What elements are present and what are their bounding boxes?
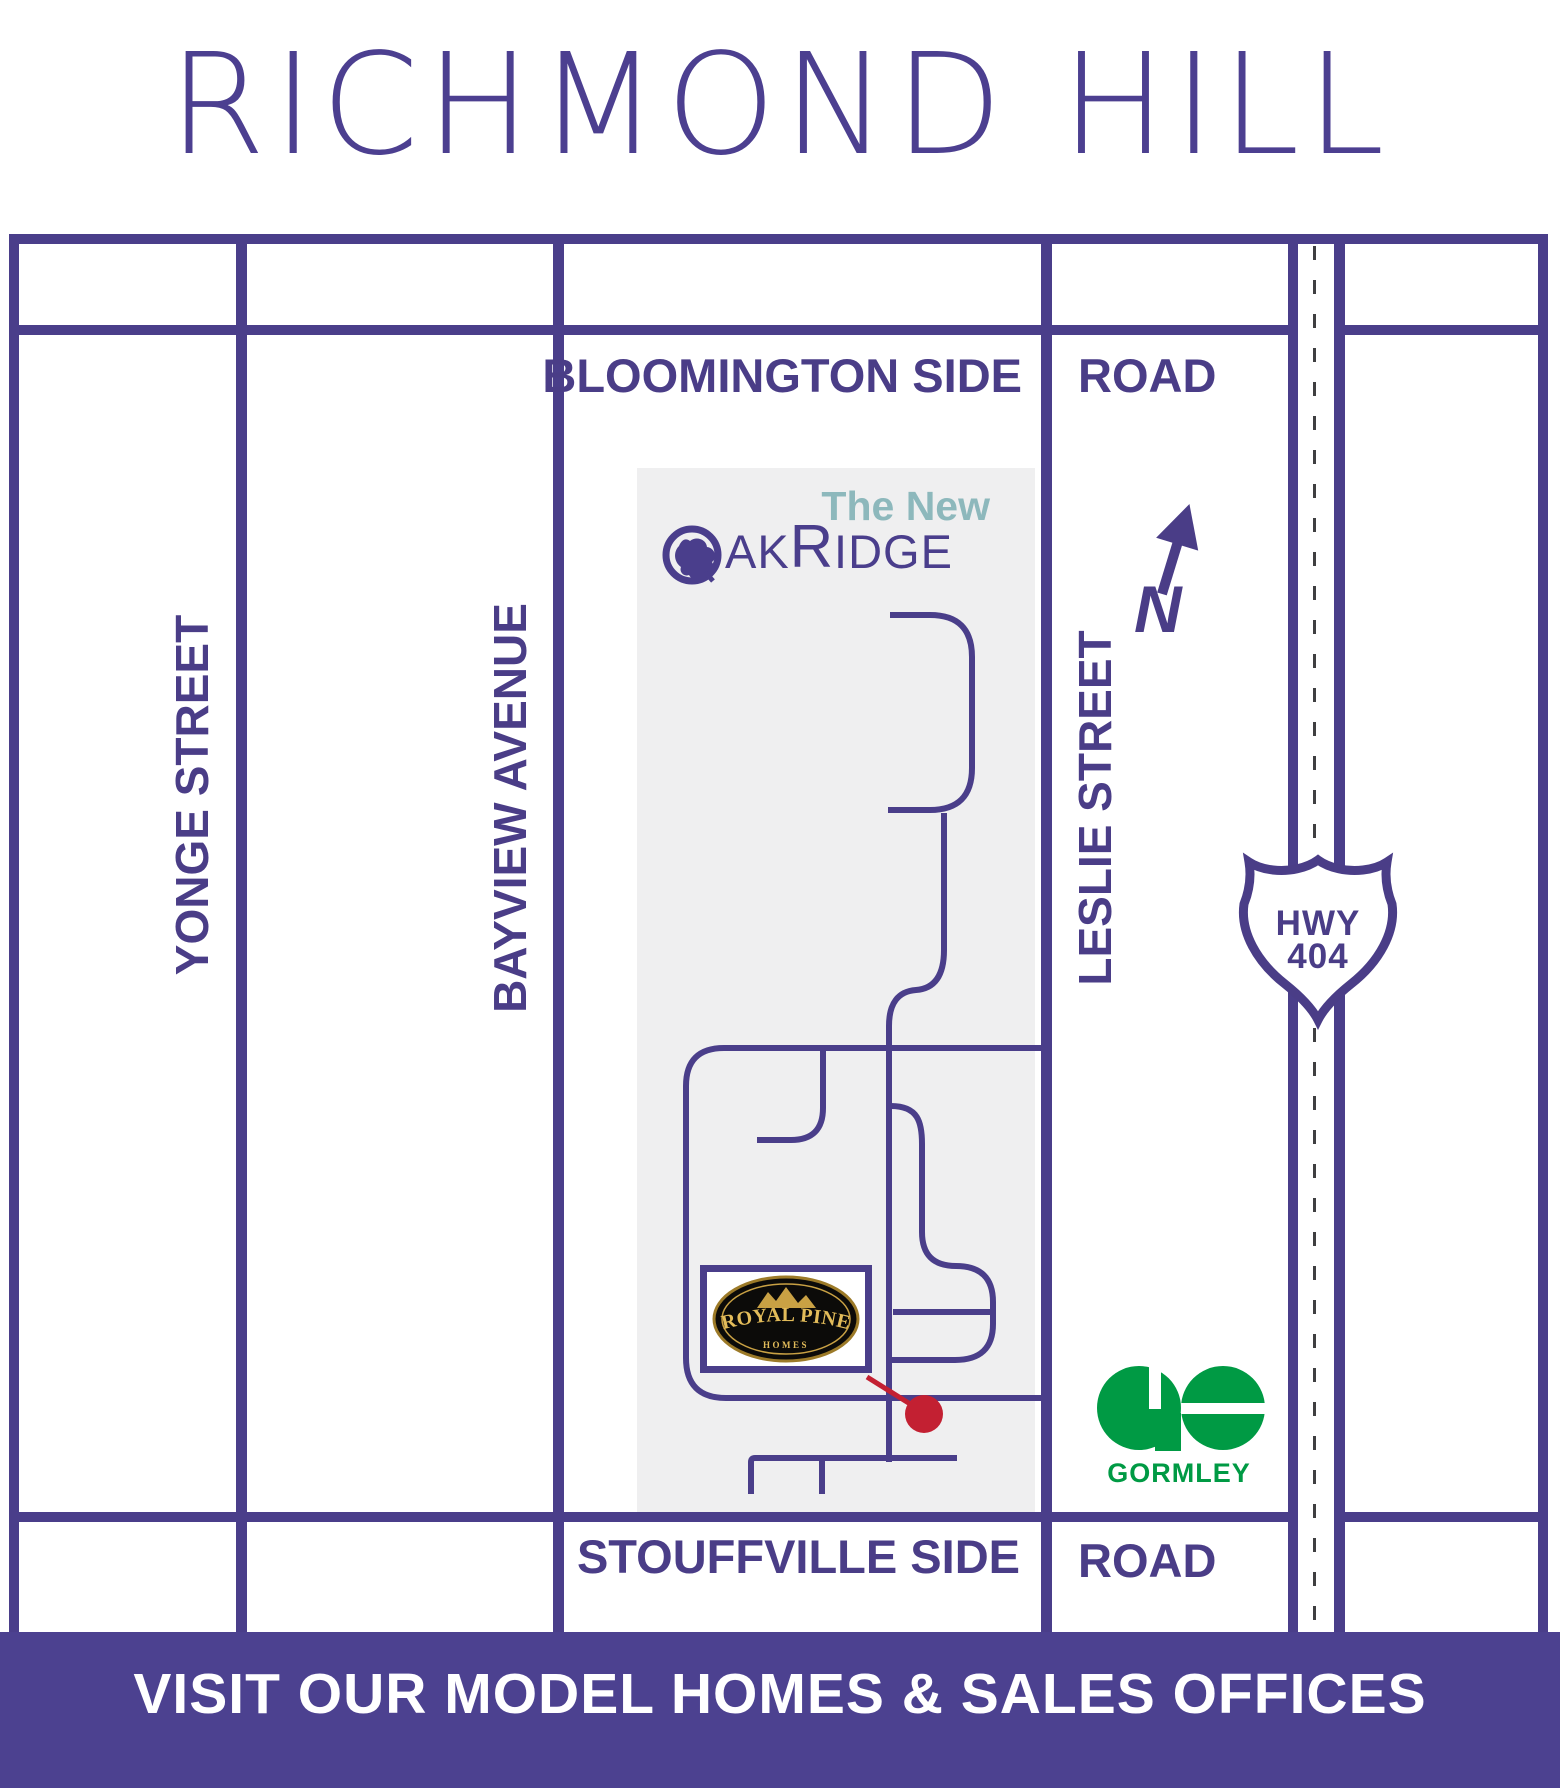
- community-road: [757, 1051, 823, 1140]
- bloomington-road-suffix-label: ROAD: [1078, 352, 1216, 399]
- compass-n-label: N: [1134, 572, 1183, 646]
- oakridge-wordmark-ak: AK: [725, 533, 790, 572]
- bloomington-side-label: BLOOMINGTON SIDE: [542, 352, 1022, 399]
- leslie-street-label: LESLIE STREET: [1072, 630, 1118, 985]
- hwy-label: HWY: [1276, 907, 1361, 940]
- community-road: [889, 813, 944, 1462]
- community-road: [891, 1106, 993, 1360]
- go-station-name: GORMLEY: [1087, 1458, 1271, 1489]
- hwy-number-label: 404: [1287, 940, 1348, 973]
- richmond-hill-map: RICHMOND HILL: [0, 0, 1560, 1788]
- bayview-avenue-label: BAYVIEW AVENUE: [487, 603, 533, 1013]
- north-compass: N: [1134, 498, 1210, 646]
- stouffville-side-label: STOUFFVILLE SIDE: [577, 1533, 1020, 1580]
- oakridge-wordmark-r: R: [790, 522, 834, 571]
- go-transit-logo-icon: [1097, 1365, 1265, 1451]
- oakridge-tagline: The New: [821, 486, 990, 527]
- hwy404-shield-text: HWY 404: [1237, 850, 1399, 1030]
- banner-text: VISIT OUR MODEL HOMES & SALES OFFICES: [133, 1666, 1426, 1723]
- oakridge-wordmark: AK R IDGE: [661, 522, 953, 571]
- stouffville-road-suffix-label: ROAD: [1078, 1537, 1216, 1584]
- bottom-banner: VISIT OUR MODEL HOMES & SALES OFFICES: [0, 1632, 1560, 1788]
- community-road: [751, 1458, 957, 1494]
- royal-pine-homes-sign: ROYAL PINE HOMES: [700, 1265, 872, 1373]
- sales-office-marker: [867, 1377, 943, 1433]
- community-road: [888, 615, 972, 810]
- oakridge-wordmark-idge: IDGE: [834, 533, 953, 572]
- royal-pine-sub: HOMES: [763, 1340, 809, 1350]
- royal-pine-logo-icon: ROYAL PINE HOMES: [707, 1272, 865, 1366]
- marker-dot-icon: [905, 1395, 943, 1433]
- yonge-street-label: YONGE STREET: [169, 615, 215, 975]
